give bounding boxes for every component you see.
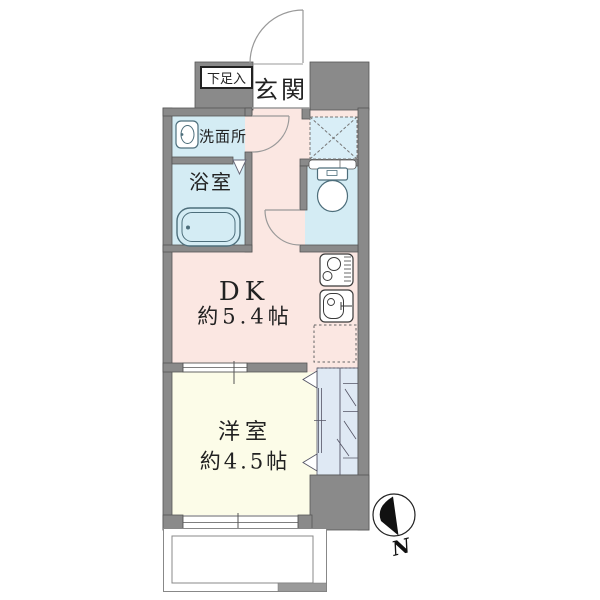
- room-label-western-room: 洋室: [218, 422, 272, 444]
- balcony-partition: [278, 583, 327, 592]
- closet-floor: [317, 368, 358, 475]
- kitchen-sink-icon: [320, 290, 353, 322]
- room-label-shoe-storage: 下足入: [200, 66, 253, 89]
- wall-hall-divider-top: [245, 108, 252, 116]
- room-size-dk: 約5.4帖: [197, 307, 292, 328]
- toilet-tank: [318, 168, 348, 180]
- wall-washroom-top: [163, 108, 252, 116]
- balcony-outer: [164, 529, 327, 592]
- wall-toilet-bottom: [300, 245, 358, 252]
- wall-top-right-block: [310, 62, 369, 110]
- wall-room-divider-left: [163, 363, 183, 372]
- toilet-icon: [318, 168, 348, 212]
- wall-bottom-right-block: [310, 475, 369, 530]
- bathtub-icon: [177, 208, 240, 246]
- stove-icon: [320, 254, 353, 286]
- wall-hall-divider: [245, 152, 252, 252]
- room-label-dk: DK: [219, 279, 269, 305]
- floorplan-image: 下足入 玄関 洗面所 浴室 DK 約5.4帖 洋室 約4.5帖 N: [0, 0, 600, 600]
- room-label-bathroom: 浴室: [189, 172, 233, 192]
- entrance-door-swing: [250, 10, 303, 63]
- room-size-western-room: 約4.5帖: [200, 452, 290, 473]
- wall-toilet-left: [300, 166, 307, 210]
- wall-right: [358, 108, 369, 530]
- wall-room-divider-right: [247, 363, 307, 372]
- wall-left: [163, 108, 172, 530]
- stove-grill-hatch: [344, 257, 351, 281]
- washbasin-faucet: [181, 133, 184, 136]
- north-arrow-icon: [373, 494, 415, 536]
- wall-bottom-mid: [298, 515, 312, 530]
- wall-bath-divider: [172, 157, 233, 164]
- washbasin-icon: [176, 121, 198, 148]
- balcony: [164, 529, 327, 592]
- wall-bottom-left: [163, 515, 183, 530]
- wall-stub: [302, 108, 310, 119]
- room-label-entrance: 玄関: [254, 78, 308, 102]
- room-label-washroom: 洗面所: [199, 130, 247, 145]
- toilet-bowl: [318, 181, 348, 212]
- dashed-x-square: [310, 117, 357, 159]
- bathtub-drain: [186, 226, 190, 230]
